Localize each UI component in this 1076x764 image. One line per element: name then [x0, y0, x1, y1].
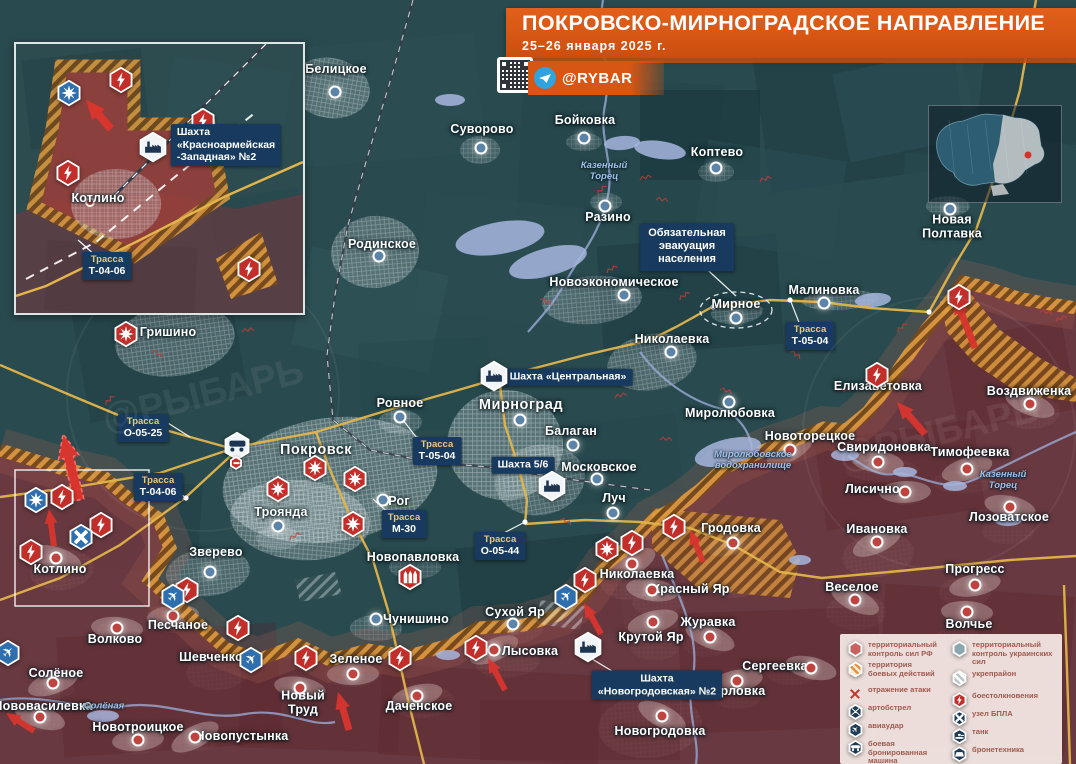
clash-icon [865, 362, 890, 389]
x-red-icon [848, 686, 863, 701]
clash-icon [56, 160, 81, 187]
tank-glyph [955, 733, 964, 739]
star-glyph [345, 516, 361, 532]
town-dot [394, 411, 407, 424]
town-dot [1004, 501, 1017, 514]
airstrike-icon: ✈ [554, 584, 579, 611]
legend-item: артобстрел [848, 704, 948, 719]
star-glyph [270, 481, 286, 497]
legend-item: танк [952, 728, 1060, 743]
road-label: ТрассаО-05-44 [475, 532, 526, 560]
town-dot [111, 622, 124, 635]
legend-label: танк [972, 728, 988, 737]
town-dot [475, 142, 488, 155]
town-dot [656, 710, 669, 723]
evacuation-callout: Обязательная эвакуация населения [640, 223, 734, 271]
hex-hatch-orange-icon [848, 661, 863, 676]
town-dot [578, 132, 591, 145]
ukraine-minimap [928, 105, 1062, 203]
star-glyph [28, 492, 44, 508]
telegram-icon [534, 67, 556, 89]
lake [994, 514, 1022, 526]
clash-icon [294, 645, 319, 672]
road-label: ТрассаМ-30 [382, 510, 427, 538]
artillery-strike-icon [114, 321, 139, 348]
hex-bbm-icon [848, 740, 863, 756]
town-dot [132, 734, 145, 747]
town-dot [507, 618, 520, 631]
clash-icon [388, 645, 413, 672]
town-dot [969, 579, 982, 592]
legend-item: укрепрайон [952, 670, 1060, 685]
town-dot [730, 312, 743, 325]
artillery-strike-icon [343, 466, 368, 493]
legend-item: боевая бронированная машина [848, 740, 948, 764]
trench-mark [720, 387, 732, 394]
legend-label: боестолкновения [972, 692, 1038, 701]
town-dot [591, 473, 604, 486]
mine-icon [574, 632, 603, 663]
legend-item: территориальный контроль сил РФ [848, 641, 948, 658]
legend-label: территория боевых действий [868, 661, 935, 678]
legend-label: бронетехника [972, 746, 1024, 755]
town-dot [899, 486, 912, 499]
hex-tank-icon [952, 728, 967, 743]
hex-avia-icon: ✈ [848, 722, 863, 738]
road-label: ТрассаТ-05-04 [786, 322, 835, 350]
legend-item: территориальный контроль украинских сил [952, 641, 1060, 667]
star-glyph [118, 326, 134, 342]
map-title: ПОКРОВСКО-МИРНОГРАДСКОЕ НАПРАВЛЕНИЕ [522, 13, 1076, 35]
river-label: Миролюбовское водохранилище [714, 450, 792, 472]
town-dot [50, 552, 63, 565]
town-dot [872, 456, 885, 469]
road-label: ТрассаТ-04-06 [83, 252, 132, 280]
town-dot [599, 200, 612, 213]
mine-label: Шахта «Красноармейская -Западная» №2 [171, 124, 281, 166]
truck-wheel [857, 749, 859, 751]
crimea [991, 184, 1009, 196]
road-label: ТрассаТ-05-04 [413, 437, 462, 465]
town-dot [1024, 398, 1037, 411]
title-banner: ПОКРОВСКО-МИРНОГРАДСКОЕ НАПРАВЛЕНИЕ 25–2… [506, 8, 1076, 58]
channel-name: @RYBAR [562, 70, 632, 87]
town-dot [618, 289, 631, 302]
town-dot [731, 675, 744, 688]
legend-panel: территориальный контроль сил РФтерритори… [840, 634, 1062, 764]
town-dot [370, 613, 383, 626]
artillery-strike-icon [303, 455, 328, 482]
legend-label: территориальный контроль сил РФ [868, 641, 937, 658]
town-dot [514, 414, 527, 427]
river-label: Казенный Торец [581, 161, 628, 183]
hex-btech-icon [952, 746, 967, 761]
inset-map-kotlino: КотлиноШахта «Красноармейская -Западная»… [14, 42, 305, 315]
town-dot [646, 584, 659, 597]
star-glyph [347, 471, 363, 487]
hex-tank-icon [952, 728, 967, 744]
clash-icon [947, 284, 972, 311]
hull [955, 736, 964, 739]
truck-wheel [852, 749, 854, 751]
artillery-strike-icon [57, 80, 82, 107]
airstrike-icon: ✈ [0, 640, 21, 667]
hex-hatch-orange-icon [848, 661, 863, 677]
clash-icon [237, 256, 262, 283]
legend-item: боестолкновения [952, 692, 1060, 707]
road-label: ТрассаТ-04-06 [134, 473, 183, 501]
lake [831, 449, 859, 461]
mine-icon [538, 471, 567, 502]
town-dot [167, 610, 180, 623]
legend-label: отражение атаки [868, 686, 931, 695]
trench-mark [242, 328, 254, 332]
lake [789, 555, 811, 565]
trench-mark [838, 389, 850, 392]
town-dot [944, 203, 957, 216]
hex-art-icon [848, 704, 863, 720]
drone-hub-icon [69, 524, 94, 551]
mine-icon [480, 361, 509, 392]
clash-icon [464, 635, 489, 662]
lake [893, 467, 917, 477]
hex-btech-icon [952, 746, 967, 762]
hex-clash-icon [952, 692, 967, 707]
clash-icon [19, 539, 44, 566]
town-dot [818, 297, 831, 310]
clash-icon [226, 615, 251, 642]
legend-label: боевая бронированная машина [868, 740, 948, 764]
legend-item: ✈авиаудар [848, 722, 948, 737]
star-glyph [307, 460, 323, 476]
legend-label: узел БПЛА [972, 710, 1013, 719]
hex-bpla-icon [952, 710, 967, 726]
town-dot [961, 463, 974, 476]
clash-icon [662, 514, 687, 541]
mine-icon [139, 132, 168, 163]
hex-bbm-icon [848, 740, 863, 755]
artillery-strike-icon [266, 476, 291, 503]
lake [436, 650, 460, 660]
clash-icon [109, 67, 134, 94]
town-dot [47, 677, 60, 690]
hex-solid-blue-icon [952, 641, 967, 656]
town-dot [373, 250, 386, 263]
star-glyph [599, 541, 615, 557]
star-glyph [61, 85, 77, 101]
town-dot [805, 662, 818, 675]
river-label: Казенный Торец [980, 470, 1027, 492]
artillery-strike-icon [595, 536, 620, 563]
legend-item: узел БПЛА [952, 710, 1060, 725]
clash-icon [620, 530, 645, 557]
legend-item: территория боевых действий [848, 661, 948, 678]
legend-label: укрепрайон [972, 670, 1016, 679]
truck-body [851, 745, 860, 748]
barrel [960, 735, 964, 736]
town-dot [272, 520, 285, 533]
town-dot [665, 346, 678, 359]
town-dot [727, 537, 740, 550]
road-label: ТрассаО-05-25 [118, 414, 169, 442]
town-dot [204, 566, 217, 579]
lake [943, 481, 967, 491]
town-dot [329, 86, 342, 99]
town-dot [189, 731, 202, 744]
truck-wheel [231, 447, 235, 451]
legend-label: территориальный контроль украинских сил [972, 641, 1060, 667]
legend-label: авиаудар [868, 722, 904, 731]
town-dot [377, 494, 390, 507]
hex-solid-blue-icon [952, 641, 967, 657]
rocket-artillery-icon [398, 564, 423, 591]
town-dot [567, 439, 580, 452]
town-dot [34, 711, 47, 724]
town-dot [294, 682, 307, 695]
legend-label: артобстрел [868, 704, 911, 713]
location-dot [1025, 152, 1032, 159]
truck-glyph [229, 441, 245, 451]
map-stage[interactable]: БелицкоеСуворовоБойковкаКоптевоРазиноРод… [0, 0, 1076, 764]
hex-clash-icon [952, 692, 967, 708]
artillery-strike-icon [24, 487, 49, 514]
map-date: 25–26 января 2025 г. [522, 39, 1076, 53]
hex-avia-icon: ✈ [848, 722, 863, 737]
channel-badge: @RYBAR [528, 61, 664, 95]
airstrike-icon: ✈ [161, 584, 186, 611]
lake [435, 94, 465, 106]
mine-label: Шахта «Центральная» [504, 369, 633, 386]
alert-icon [230, 456, 243, 470]
mine-label: Шахта «Новогродовская» №2 [592, 670, 722, 699]
town-dot [647, 616, 660, 629]
trench-mark [790, 350, 802, 359]
town-dot [411, 690, 424, 703]
town-dot [488, 644, 501, 657]
clash-icon [50, 484, 75, 511]
town-dot [849, 594, 862, 607]
trench-mark [614, 392, 626, 398]
rockets-glyph [403, 571, 418, 584]
town-dot [347, 668, 360, 681]
town-dot [607, 507, 620, 520]
legend-item: отражение атаки [848, 686, 948, 701]
hex-solid-red-icon [848, 641, 863, 657]
airstrike-icon: ✈ [239, 647, 264, 674]
town-dot [723, 396, 736, 409]
town-dot [704, 631, 717, 644]
hex-art-icon [848, 704, 863, 719]
hex-hatch-white-icon [952, 670, 967, 685]
hex-bpla-icon [952, 710, 967, 725]
town-dot [710, 162, 723, 175]
legend-item: бронетехника [952, 746, 1060, 761]
alert-bar [233, 462, 239, 464]
river-label: Солёная [84, 702, 124, 713]
truck-wheel [240, 447, 244, 451]
artillery-strike-icon [341, 511, 366, 538]
town-dot [961, 606, 974, 619]
hex-hatch-white-icon [952, 670, 967, 686]
town-dot [871, 536, 884, 549]
truck-glyph [851, 745, 860, 751]
hex-solid-red-icon [848, 641, 863, 656]
truck-body [229, 441, 245, 447]
cross-glyph [851, 707, 861, 717]
town-dot [626, 558, 639, 571]
